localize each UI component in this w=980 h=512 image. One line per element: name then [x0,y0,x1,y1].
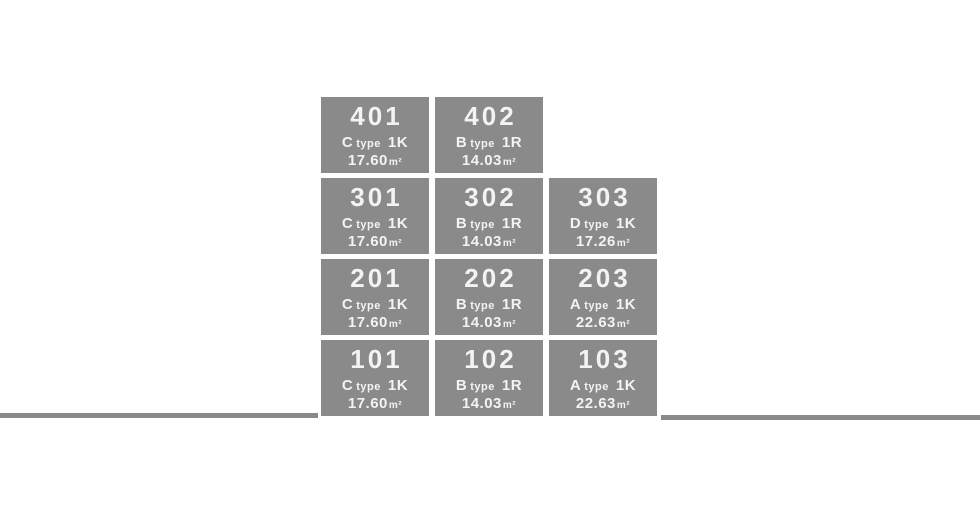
room-101[interactable]: 101 Ctype1K 17.60m² [321,340,429,416]
room-area: 17.60m² [321,315,429,330]
plan-word: type [356,138,381,150]
plan-letter: C [342,215,353,232]
room-number: 103 [549,340,657,374]
room-number: 101 [321,340,429,374]
room-type: Ctype1K [321,216,429,231]
area-unit: m² [503,238,516,249]
floor-row-3: 301 Ctype1K 17.60m² 302 Btype1R 14.03m² … [321,178,657,254]
area-value: 22.63 [576,314,616,331]
room-202[interactable]: 202 Btype1R 14.03m² [435,259,543,335]
area-value: 17.60 [348,314,388,331]
floor-row-4: 401 Ctype1K 17.60m² 402 Btype1R 14.03m² [321,97,657,173]
area-unit: m² [617,238,630,249]
area-value: 17.60 [348,233,388,250]
area-value: 22.63 [576,395,616,412]
room-area: 22.63m² [549,315,657,330]
room-number: 202 [435,259,543,293]
area-unit: m² [389,157,402,168]
area-unit: m² [503,319,516,330]
room-type: Ctype1K [321,378,429,393]
room-area: 14.03m² [435,153,543,168]
room-type: Btype1R [435,378,543,393]
room-type: Dtype1K [549,216,657,231]
room-201[interactable]: 201 Ctype1K 17.60m² [321,259,429,335]
area-unit: m² [503,157,516,168]
plan-letter: B [456,215,467,232]
room-type: Btype1R [435,297,543,312]
room-layout: 1K [388,134,408,151]
plan-letter: B [456,296,467,313]
room-number: 402 [435,97,543,131]
area-unit: m² [389,238,402,249]
floor-row-1: 101 Ctype1K 17.60m² 102 Btype1R 14.03m² … [321,340,657,416]
room-number: 102 [435,340,543,374]
room-area: 17.26m² [549,234,657,249]
room-type: Btype1R [435,216,543,231]
area-value: 17.26 [576,233,616,250]
area-value: 14.03 [462,395,502,412]
area-value: 17.60 [348,152,388,169]
room-102[interactable]: 102 Btype1R 14.03m² [435,340,543,416]
ground-line-left [0,413,318,418]
room-layout: 1K [388,296,408,313]
room-type: Atype1K [549,297,657,312]
plan-word: type [470,138,495,150]
room-area: 17.60m² [321,234,429,249]
building-cross-section: 401 Ctype1K 17.60m² 402 Btype1R 14.03m² … [321,97,657,416]
room-area: 17.60m² [321,396,429,411]
room-type: Btype1R [435,135,543,150]
room-layout: 1R [502,377,522,394]
room-type: Atype1K [549,378,657,393]
plan-word: type [356,381,381,393]
area-unit: m² [617,400,630,411]
room-layout: 1K [616,296,636,313]
room-303[interactable]: 303 Dtype1K 17.26m² [549,178,657,254]
room-area: 14.03m² [435,234,543,249]
room-number: 301 [321,178,429,212]
plan-word: type [470,300,495,312]
plan-word: type [356,219,381,231]
room-layout: 1R [502,215,522,232]
plan-letter: D [570,215,581,232]
plan-letter: C [342,134,353,151]
room-area: 14.03m² [435,315,543,330]
area-unit: m² [617,319,630,330]
plan-letter: A [570,296,581,313]
area-value: 14.03 [462,152,502,169]
plan-letter: B [456,134,467,151]
area-value: 14.03 [462,314,502,331]
plan-letter: C [342,296,353,313]
room-401[interactable]: 401 Ctype1K 17.60m² [321,97,429,173]
room-number: 303 [549,178,657,212]
plan-letter: C [342,377,353,394]
plan-word: type [470,219,495,231]
room-type: Ctype1K [321,135,429,150]
room-area: 14.03m² [435,396,543,411]
room-402[interactable]: 402 Btype1R 14.03m² [435,97,543,173]
plan-word: type [470,381,495,393]
room-number: 302 [435,178,543,212]
area-unit: m² [389,400,402,411]
room-layout: 1R [502,296,522,313]
room-203[interactable]: 203 Atype1K 22.63m² [549,259,657,335]
area-unit: m² [389,319,402,330]
area-unit: m² [503,400,516,411]
plan-letter: B [456,377,467,394]
plan-word: type [584,219,609,231]
plan-word: type [356,300,381,312]
room-layout: 1K [616,377,636,394]
floor-row-2: 201 Ctype1K 17.60m² 202 Btype1R 14.03m² … [321,259,657,335]
room-301[interactable]: 301 Ctype1K 17.60m² [321,178,429,254]
room-layout: 1K [388,377,408,394]
room-area: 17.60m² [321,153,429,168]
ground-line-right [661,415,980,420]
room-layout: 1K [388,215,408,232]
plan-word: type [584,300,609,312]
area-value: 17.60 [348,395,388,412]
room-type: Ctype1K [321,297,429,312]
area-value: 14.03 [462,233,502,250]
room-number: 201 [321,259,429,293]
room-layout: 1K [616,215,636,232]
room-number: 203 [549,259,657,293]
plan-word: type [584,381,609,393]
room-103[interactable]: 103 Atype1K 22.63m² [549,340,657,416]
room-number: 401 [321,97,429,131]
room-302[interactable]: 302 Btype1R 14.03m² [435,178,543,254]
plan-letter: A [570,377,581,394]
room-area: 22.63m² [549,396,657,411]
room-layout: 1R [502,134,522,151]
